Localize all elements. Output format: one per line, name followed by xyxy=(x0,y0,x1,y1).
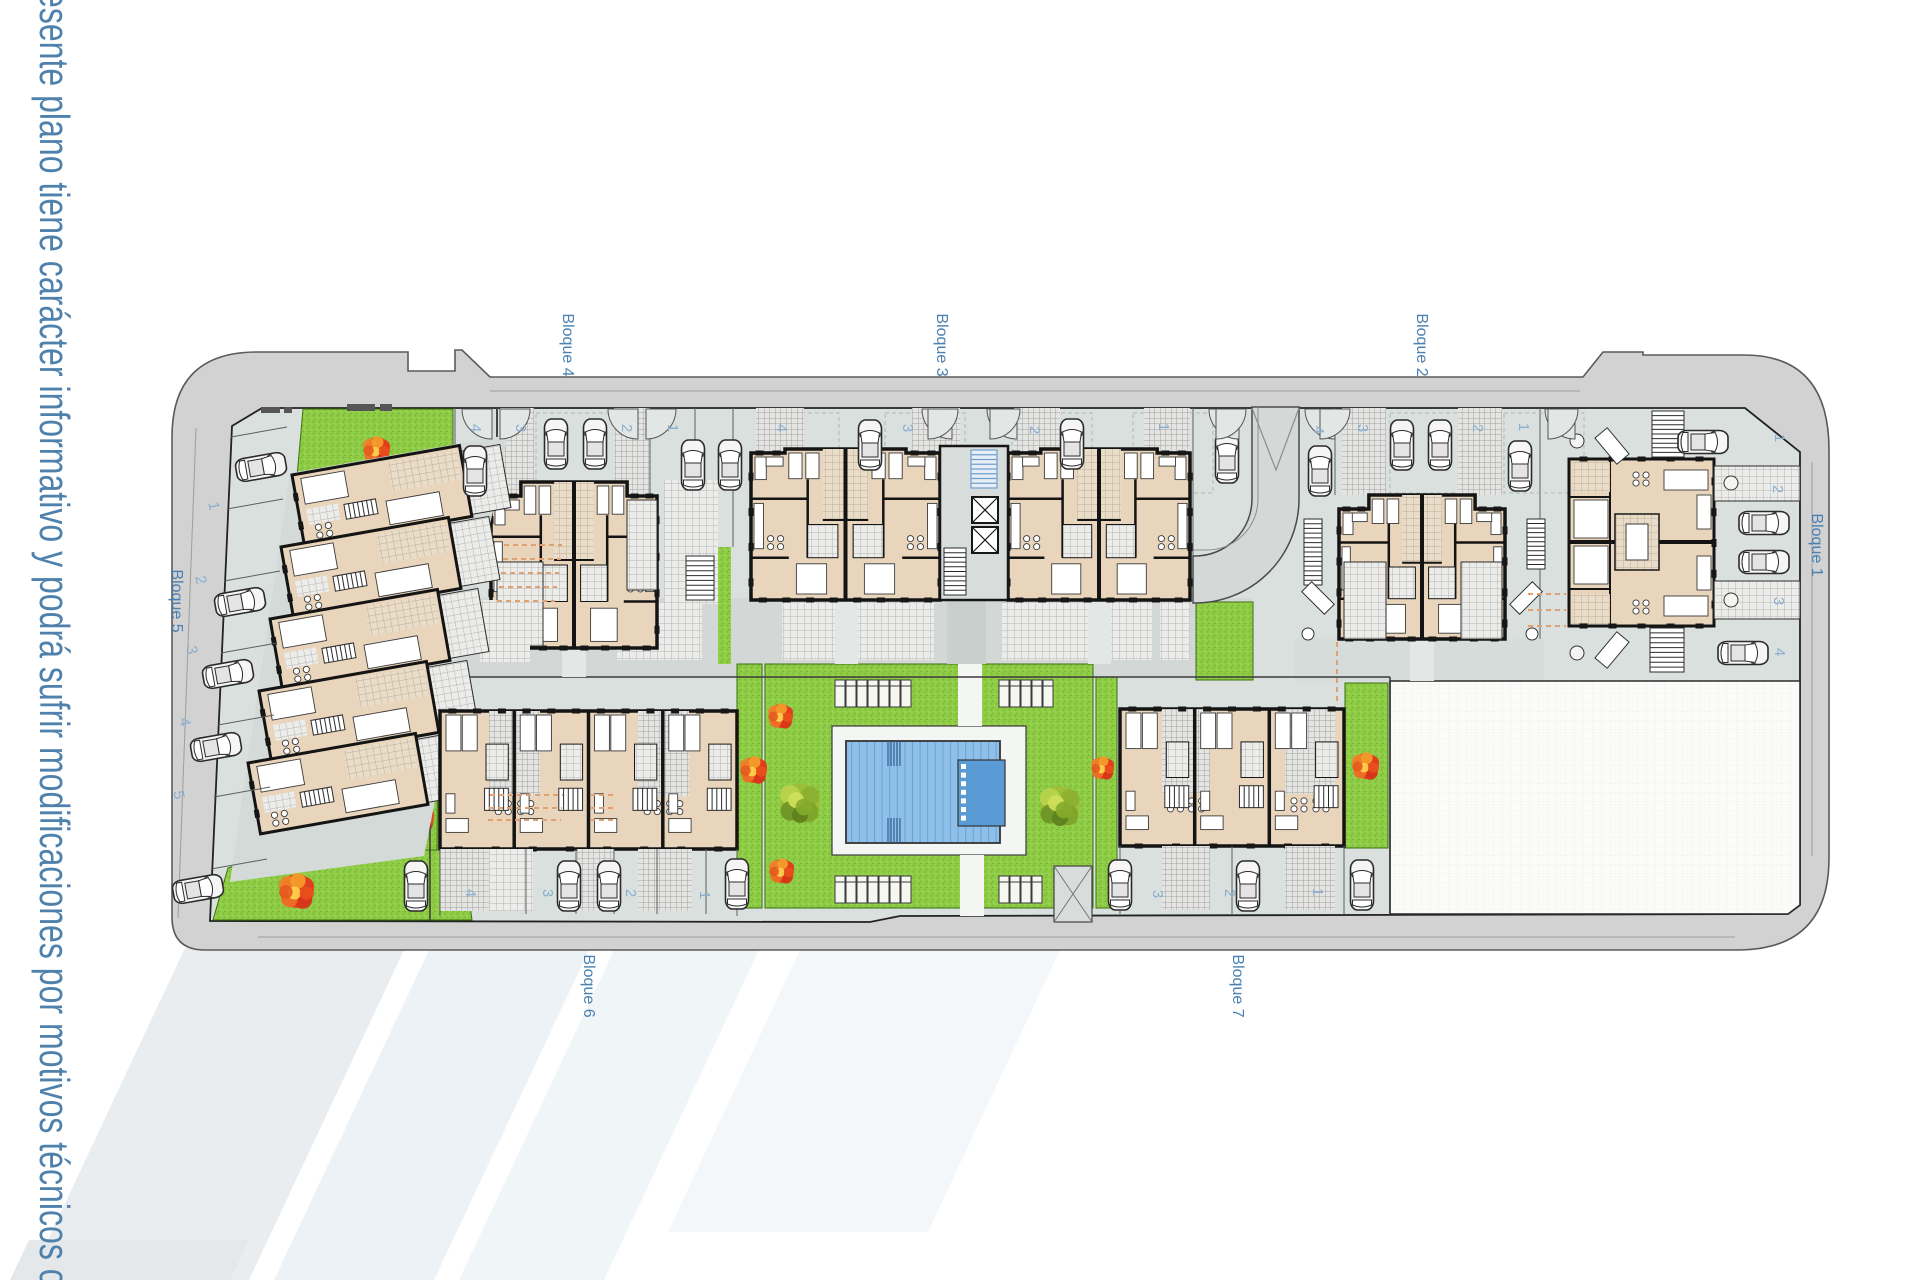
svg-text:Bloque 5: Bloque 5 xyxy=(168,569,185,632)
svg-text:Bloque 7: Bloque 7 xyxy=(1229,954,1246,1017)
svg-text:3: 3 xyxy=(1149,890,1166,898)
svg-text:1: 1 xyxy=(1515,423,1532,431)
svg-text:1: 1 xyxy=(1771,434,1788,442)
svg-text:2: 2 xyxy=(1769,485,1786,493)
svg-text:3: 3 xyxy=(539,889,556,897)
svg-text:1: 1 xyxy=(1155,423,1172,431)
svg-text:1: 1 xyxy=(664,424,681,432)
svg-text:4: 4 xyxy=(773,424,790,432)
svg-text:2: 2 xyxy=(1469,424,1486,432)
svg-text:2: 2 xyxy=(618,424,635,432)
svg-text:Bloque 1: Bloque 1 xyxy=(1808,513,1825,576)
svg-text:2: 2 xyxy=(622,889,639,897)
svg-text:4: 4 xyxy=(1771,648,1788,656)
svg-text:3: 3 xyxy=(512,424,529,432)
svg-text:1: 1 xyxy=(696,891,713,899)
svg-text:Bloque 6: Bloque 6 xyxy=(580,954,597,1017)
svg-text:2: 2 xyxy=(1026,426,1043,434)
svg-text:Bloque 2: Bloque 2 xyxy=(1413,313,1430,376)
svg-text:esente plano tiene carácter in: esente plano tiene carácter informativo … xyxy=(31,0,78,1280)
svg-text:Bloque 3: Bloque 3 xyxy=(933,313,950,376)
svg-text:4: 4 xyxy=(1310,426,1327,434)
svg-text:3: 3 xyxy=(899,424,916,432)
svg-text:3: 3 xyxy=(1354,424,1371,432)
svg-text:3: 3 xyxy=(1770,597,1787,605)
svg-text:Bloque 4: Bloque 4 xyxy=(559,313,576,376)
svg-text:1: 1 xyxy=(1309,888,1326,896)
svg-text:2: 2 xyxy=(1221,889,1238,897)
svg-text:4: 4 xyxy=(462,889,479,897)
svg-text:4: 4 xyxy=(467,424,484,432)
